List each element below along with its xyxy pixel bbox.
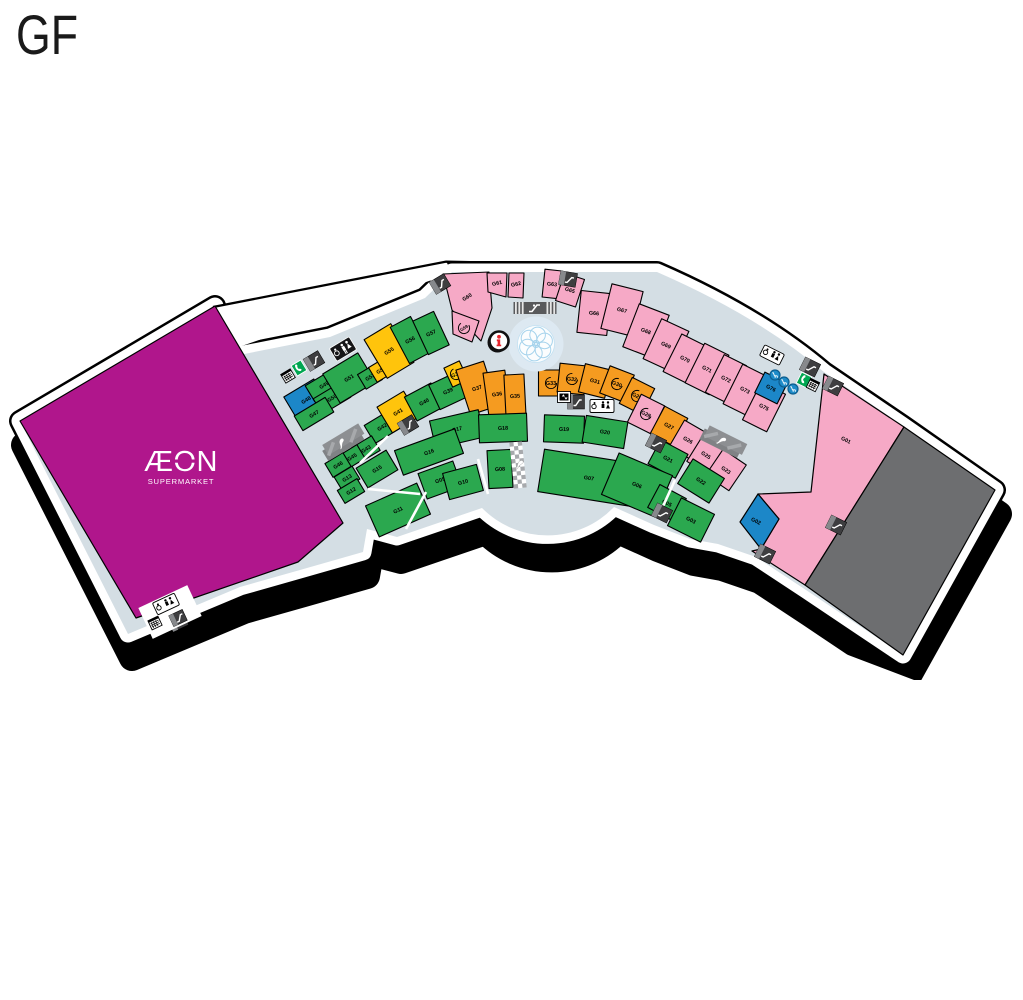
svg-text:G32: G32 <box>567 376 578 383</box>
svg-text:G08: G08 <box>495 467 506 474</box>
svg-text:G33: G33 <box>546 381 556 387</box>
svg-text:G19: G19 <box>559 427 569 433</box>
svg-text:G18: G18 <box>498 426 508 432</box>
svg-text:G35: G35 <box>510 394 521 401</box>
svg-text:SUPERMARKET: SUPERMARKET <box>148 477 215 486</box>
svg-text:G66: G66 <box>589 310 600 317</box>
svg-text:GF: GF <box>16 3 78 66</box>
svg-text:G63: G63 <box>547 281 558 288</box>
